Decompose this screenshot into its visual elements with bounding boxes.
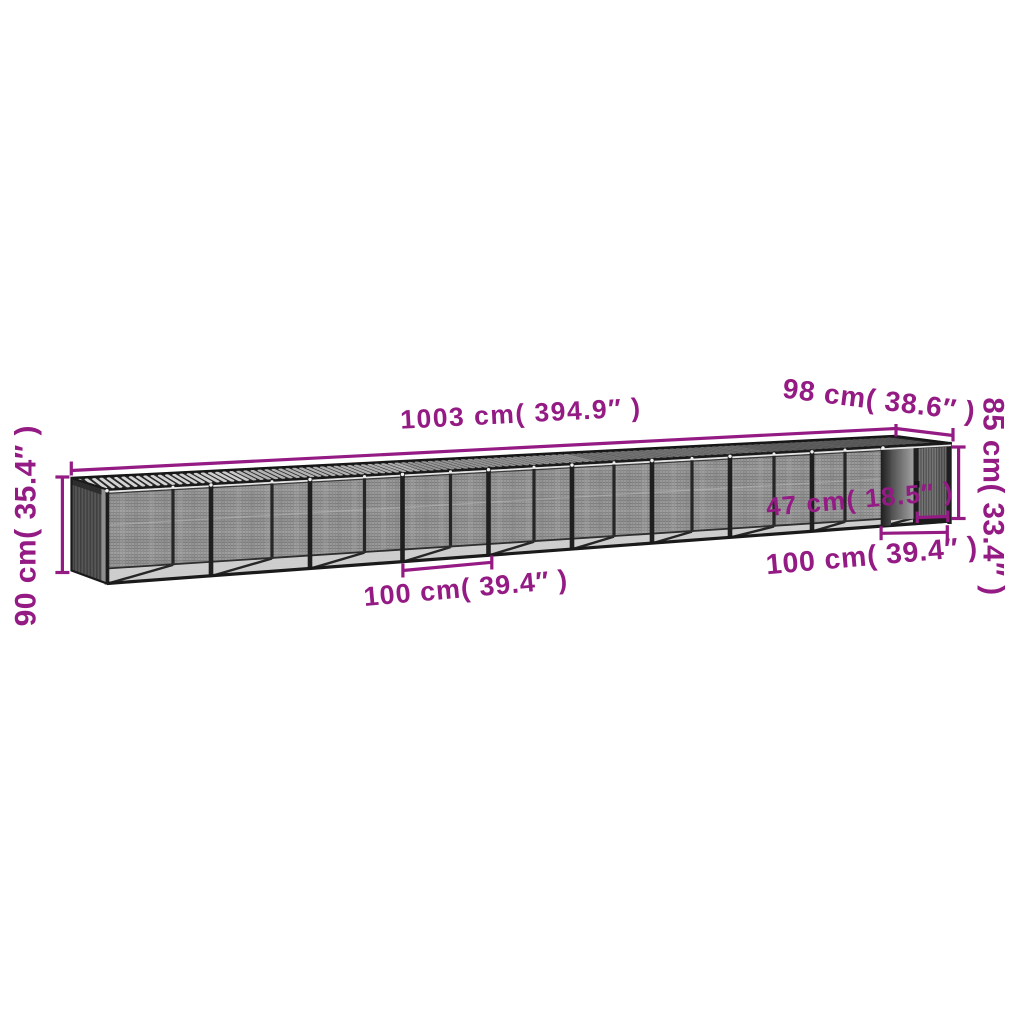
svg-text:85 cm( 33.4″ ): 85 cm( 33.4″ ) [977,397,1010,595]
svg-text:90 cm( 35.4″ ): 90 cm( 35.4″ ) [9,425,42,626]
